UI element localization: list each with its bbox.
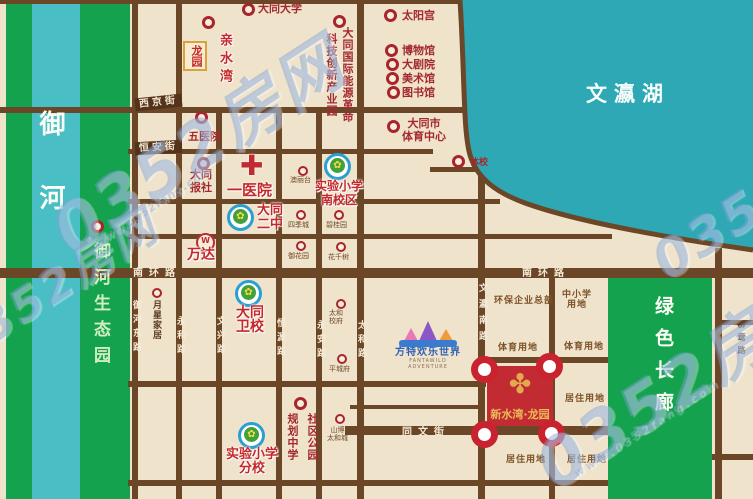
weixiao-line1: 大同: [228, 306, 272, 320]
dajuyuan-marker: [386, 58, 399, 71]
wenying-lake: [455, 0, 753, 258]
road-liuying: [715, 248, 722, 499]
landuse-env-hq: 环保企业总部: [494, 296, 554, 306]
school-badge-glyph: ✿: [241, 285, 256, 300]
sijicheng-label: 四季城: [288, 221, 309, 229]
yuhe-river-label: 御河: [32, 110, 69, 258]
pingchengfu-marker: [337, 354, 347, 364]
yuexing-label: 月星家居: [149, 300, 162, 340]
huaqianshu-marker: [336, 242, 346, 252]
weixiao-school-icon: ✿: [235, 280, 262, 307]
project-marker-1: [471, 356, 498, 383]
street-wenxing: 文兴路: [215, 316, 224, 358]
shequ-marker: [294, 397, 307, 410]
taihe-xiaofu-line2: 校府: [329, 317, 343, 325]
road-h9: [350, 405, 485, 409]
hospital-cross-icon: ✚: [240, 152, 263, 180]
wuyiyuan-label: 五医院: [188, 130, 221, 143]
weixiao-line2: 卫校: [228, 320, 272, 334]
shequ-gongyuan-label: 社区公园: [306, 413, 319, 461]
tushuguan-marker: [387, 86, 400, 99]
guihua-zhongxue-label: 规划中学: [286, 413, 299, 461]
pingchengfu-label: 平城府: [329, 365, 350, 373]
landuse-school: 中小学 用地: [562, 290, 592, 310]
tushuguan-label: 图书馆: [402, 86, 435, 99]
huaqianshu-label: 花千树: [328, 253, 349, 261]
landuse-sports-west: 体育用地: [498, 343, 538, 353]
project-marker-4: [538, 420, 565, 447]
project-marker-3: [471, 421, 498, 448]
exp-south-school-icon: ✿: [324, 153, 351, 180]
yuhe-eco-park-label: 御河生态园: [88, 242, 113, 372]
lake-label: 文瀛湖: [586, 78, 670, 108]
road-hengyuan: [276, 107, 282, 499]
yuhuayuan-marker: [296, 241, 306, 251]
exp-south-line2: 南校区: [314, 193, 364, 207]
exp-south-line1: 实验小学: [314, 179, 364, 193]
shanbo-marker: [335, 414, 345, 424]
school-badge-glyph: ✿: [330, 158, 345, 173]
project-marker-2: [536, 353, 563, 380]
location-map: 御河 御河生态园 文瀛湖 绿色长廊 西京街 恒安街 南环路 南环路 同文街 御河…: [0, 0, 753, 499]
aolitai-marker: [298, 166, 308, 176]
school-badge-glyph: ✿: [233, 209, 248, 224]
wanda-label: 万达: [187, 248, 215, 262]
tixiao-label: 体校: [470, 157, 488, 170]
yuexing-marker: [152, 288, 162, 298]
baoshe-label: 大同 报社: [190, 168, 212, 194]
meishuguan-marker: [386, 72, 399, 85]
exp-branch-line1: 实验小学: [224, 448, 280, 462]
school-badge-glyph: ✿: [244, 427, 259, 442]
erzhong-school-icon: ✿: [227, 204, 254, 231]
sports-center-line2: 体育中心: [402, 130, 446, 143]
street-yonghe: 永和路: [175, 316, 184, 358]
street-hengan: 恒安街: [135, 140, 183, 155]
road-taihe: [357, 0, 364, 499]
meishuguan-label: 美术馆: [402, 72, 435, 85]
yuhe-eco-park-marker: [91, 220, 104, 233]
erzhong-label: 大同 二中: [257, 204, 283, 232]
street-wenyingnan: 文瀛南路: [477, 283, 486, 347]
weixiao-label: 大同 卫校: [228, 306, 272, 334]
exp-branch-line2: 分校: [224, 462, 280, 476]
qinshuiwan-marker: [202, 16, 215, 29]
road-xijing: [0, 107, 464, 113]
taiyanggong-marker: [384, 9, 397, 22]
landuse-school-line1: 中小学: [562, 290, 592, 300]
road-h10: [128, 480, 616, 486]
landuse-residential-sw: 居住用地: [506, 455, 546, 465]
taiyanggong-label: 太阳宫: [402, 9, 435, 22]
road-yonghe: [176, 0, 182, 499]
shanbo-line2: 太和城: [327, 434, 348, 442]
sijicheng-marker: [296, 210, 306, 220]
road-top: [0, 0, 462, 4]
qinshuiwan-label: 亲水湾: [217, 33, 231, 87]
longyuan-label: 龙园: [183, 41, 207, 71]
street-taihe: 太和路: [356, 320, 365, 362]
fangte-castle-icon: [390, 321, 466, 347]
street-yongan: 永安路: [315, 320, 324, 362]
baoshe-line1: 大同: [190, 168, 212, 181]
taihe-xiaofu-marker: [336, 299, 346, 309]
shanbo-line1: 山博: [327, 426, 348, 434]
shanbo-label: 山博 太和城: [327, 426, 348, 442]
street-hengyuan: 恒源路: [275, 318, 284, 360]
sports-center-marker: [387, 120, 400, 133]
biguiyuan-label: 碧桂园: [326, 221, 347, 229]
taihe-xiaofu-label: 太和 校府: [329, 309, 343, 325]
wuyiyuan-marker: [195, 111, 208, 124]
street-yuhedong: 御河东路: [131, 300, 140, 356]
road-wenxing: [216, 107, 222, 499]
street-tongwen: 同文街: [402, 428, 450, 438]
landuse-residential-ne: 居住用地: [565, 394, 605, 404]
sports-center-label: 大同市 体育中心: [402, 117, 446, 143]
datong-univ-marker: [242, 3, 255, 16]
bowuguan-marker: [385, 44, 398, 57]
yuhuayuan-label: 御花园: [288, 252, 309, 260]
dajuyuan-label: 大剧院: [402, 58, 435, 71]
yiyiyuan-label: 一医院: [227, 183, 272, 197]
landuse-residential-se: 居住用地: [567, 455, 607, 465]
taihe-xiaofu-line1: 太和: [329, 309, 343, 317]
aolitai-label: 澳丽台: [290, 176, 311, 184]
baoshe-line2: 报社: [190, 181, 212, 194]
fangte-name-en: FANTAWILD ADVENTURE: [390, 358, 466, 370]
energy-park-line1: 大同国际能源革命: [341, 27, 354, 123]
exp-branch-label: 实验小学 分校: [224, 448, 280, 476]
bowuguan-label: 博物馆: [402, 44, 435, 57]
exp-south-label: 实验小学 南校区: [314, 179, 364, 207]
street-nanhuan-east: 南环路: [522, 269, 570, 279]
green-corridor-label: 绿色长廊: [650, 296, 677, 424]
landuse-school-line2: 用地: [562, 300, 592, 310]
tixiao-marker: [452, 155, 465, 168]
exp-branch-school-icon: ✿: [238, 422, 265, 449]
erzhong-line2: 二中: [257, 218, 283, 232]
sports-center-line1: 大同市: [402, 117, 446, 130]
street-nanhuan-west: 南环路: [133, 269, 181, 279]
fangte-logo: 方特欢乐世界 FANTAWILD ADVENTURE: [390, 321, 466, 370]
energy-park-line2: 科技创新产业园: [325, 33, 338, 117]
datong-univ-label: 大同大学: [258, 2, 302, 15]
biguiyuan-marker: [334, 210, 344, 220]
road-yuhedong: [132, 0, 138, 499]
street-liuying: 柳莺路: [737, 320, 746, 359]
erzhong-line1: 大同: [257, 204, 283, 218]
fangte-name: 方特欢乐世界: [390, 347, 466, 358]
landuse-sports-east: 体育用地: [564, 342, 604, 352]
